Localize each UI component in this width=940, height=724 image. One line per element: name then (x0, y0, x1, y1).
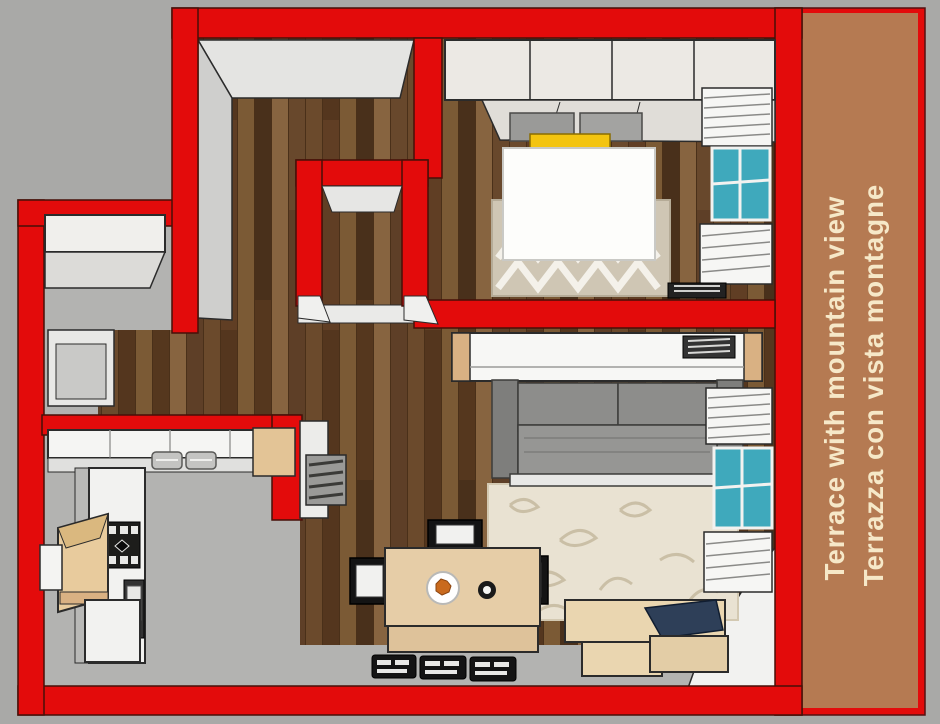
bedroom-radiator (668, 283, 726, 298)
wall-bathroom-left (296, 160, 322, 306)
entry-shelf (48, 330, 114, 406)
bed (503, 113, 655, 260)
floor-plan-rendering: Terrace with mountain view Terrazza con … (0, 0, 940, 724)
dining-table (385, 548, 540, 652)
bathroom-wall-face (322, 186, 402, 212)
corridor-radiator (306, 455, 346, 505)
floor-grille (470, 657, 516, 681)
living-radiator (683, 336, 735, 358)
storage-box (650, 636, 728, 672)
wall-upper-left-vertical (172, 8, 198, 333)
wall-top (172, 8, 802, 38)
floor-grille (372, 655, 416, 678)
bedroom-window (700, 88, 772, 284)
wall-left (18, 200, 44, 715)
floor-grille (420, 656, 466, 679)
floor-plan: Terrace with mountain view Terrazza con … (0, 0, 940, 724)
wall-right (775, 8, 802, 715)
terrace-label-it: Terrazza con vista montagne (858, 184, 889, 586)
dining-chair (428, 520, 482, 550)
living-window (704, 388, 772, 592)
terrace-label-en: Terrace with mountain view (819, 196, 850, 581)
wall-bathroom-right (402, 160, 428, 306)
kitchen-wood-panel (253, 428, 295, 476)
stove (104, 522, 140, 568)
entry-closet (45, 215, 165, 288)
wall-living-divider (414, 300, 775, 328)
wall-bottom (18, 686, 802, 715)
hall-wall-face-top (198, 40, 414, 98)
bench-area (565, 600, 728, 676)
wall-bedroom-divider-vertical (414, 38, 442, 178)
bed-duvet (503, 148, 655, 260)
